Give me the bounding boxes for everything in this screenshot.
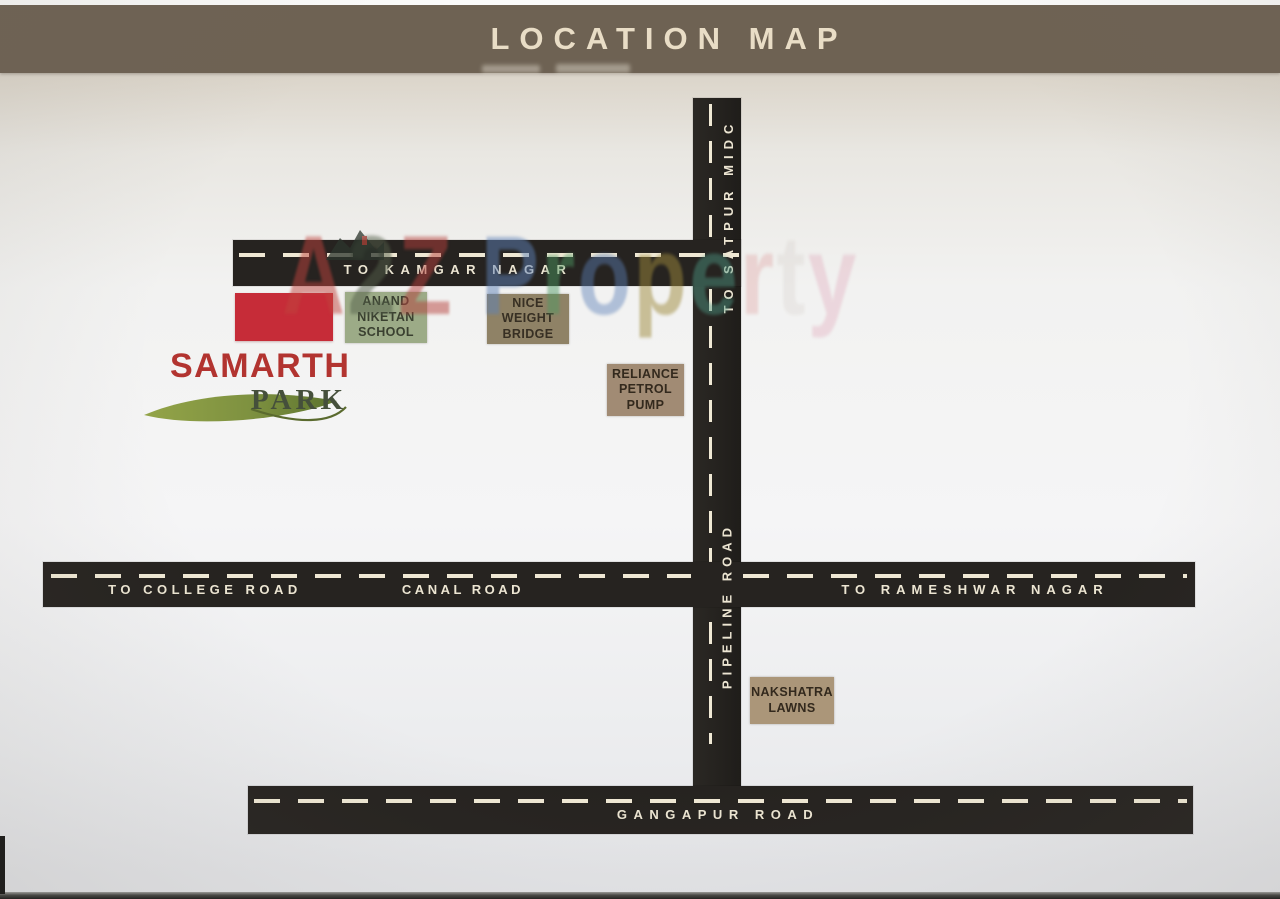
watermark-letter: t [776, 220, 807, 332]
page-title: LOCATION MAP [0, 5, 1280, 73]
landmark-label: NIKETAN [357, 310, 414, 326]
watermark-letter: r [740, 220, 776, 332]
landmark-label: NAKSHATRA [751, 685, 833, 701]
landmark-label: RELIANCE [612, 367, 679, 383]
road-label-gangapur: GANGAPUR ROAD [558, 807, 878, 822]
road-center-line [51, 574, 691, 578]
project-name: SAMARTH [170, 347, 350, 386]
landmark-reliance-petrol-pump: RELIANCE PETROL PUMP [607, 364, 684, 416]
watermark-letter: y [808, 220, 859, 332]
road-label-canal: CANAL ROAD [303, 582, 623, 597]
site-marker [235, 293, 333, 341]
photo-corner-mark [0, 836, 5, 894]
landmark-nakshatra-lawns: NAKSHATRA LAWNS [750, 677, 834, 724]
road-label-pipeline: PIPELINE ROAD [718, 509, 738, 704]
project-name-sub: PARK [251, 384, 347, 417]
landmark-anand-niketan-school: ANAND NIKETAN SCHOOL [345, 292, 427, 343]
photo-bottom-edge [0, 892, 1280, 899]
road-canal: TO COLLEGE ROAD CANAL ROAD TO RAMESHWAR … [43, 562, 1195, 607]
landmark-label: BRIDGE [502, 327, 553, 343]
road-center-line [254, 799, 1187, 803]
road-kamgar-nagar: TO KAMGAR NAGAR [233, 240, 741, 286]
header-smudge [482, 65, 540, 73]
landmark-nice-weight-bridge: NICE WEIGHT BRIDGE [487, 294, 569, 344]
landmark-label: PUMP [627, 398, 665, 414]
road-label-satpur: TO SATPUR MIDC [719, 96, 739, 336]
landmark-label: WEIGHT [502, 311, 554, 327]
road-center-line [239, 253, 739, 257]
landmark-label: NICE [512, 296, 543, 312]
road-label-kamgar: TO KAMGAR NAGAR [298, 262, 618, 277]
road-gangapur: GANGAPUR ROAD [248, 786, 1193, 834]
landmark-label: SCHOOL [358, 325, 414, 341]
road-center-line [743, 574, 1187, 578]
road-label-rameshwar: TO RAMESHWAR NAGAR [815, 582, 1135, 597]
header-bar: LOCATION MAP [0, 5, 1280, 73]
header-smudge [556, 64, 630, 73]
landmark-label: ANAND [362, 294, 409, 310]
photo-top-edge [0, 0, 1280, 5]
landmark-label: LAWNS [768, 701, 815, 717]
location-map: LOCATION MAP TO KAMGAR NAGAR TO COLLEGE … [0, 0, 1280, 899]
road-center-line [709, 104, 712, 744]
landmark-label: PETROL [619, 382, 672, 398]
